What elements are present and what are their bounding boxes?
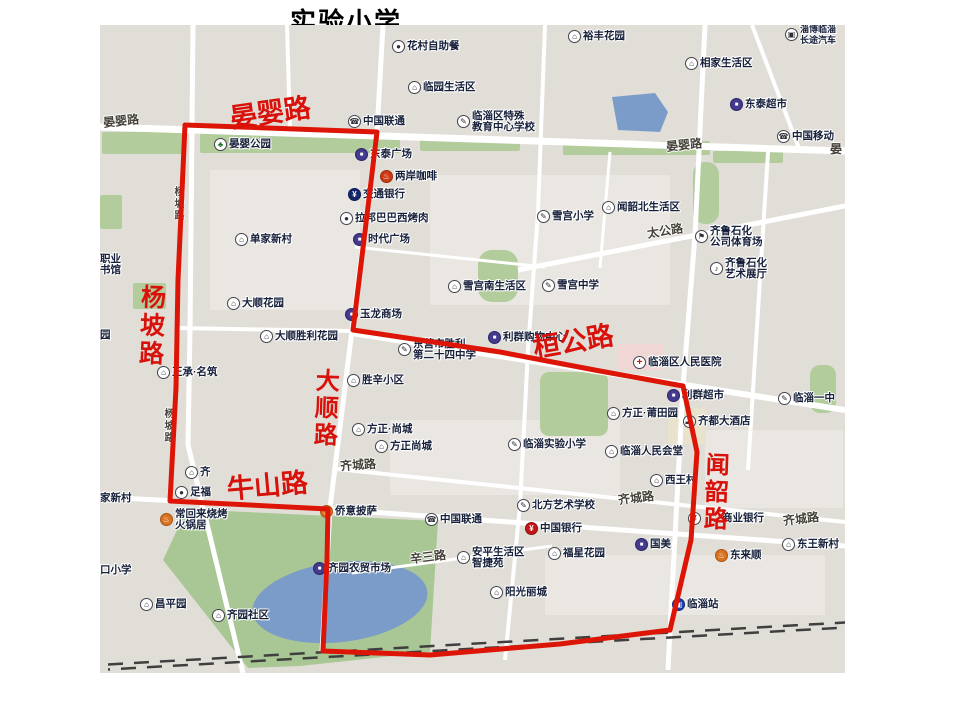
red-road-label: 晏婴路: [228, 93, 313, 136]
red-road-label: 牛山路: [226, 468, 309, 507]
red-road-label: 杨坡路: [135, 284, 167, 369]
red-road-label: 闻韶路: [699, 452, 730, 534]
red-road-label: 桓公路: [531, 320, 616, 365]
map-figure: 实验小学 ●花村自助餐⌂裕丰花园▣淄博临淄长途汽车⌂相家生活区⌂临园生活区■东泰…: [0, 0, 960, 720]
red-label-layer: 晏婴路杨坡路大顺路牛山路桓公路闻韶路: [100, 25, 845, 673]
red-road-label: 大顺路: [309, 368, 340, 450]
map-image: ●花村自助餐⌂裕丰花园▣淄博临淄长途汽车⌂相家生活区⌂临园生活区■东泰超市☎中国…: [100, 25, 845, 673]
